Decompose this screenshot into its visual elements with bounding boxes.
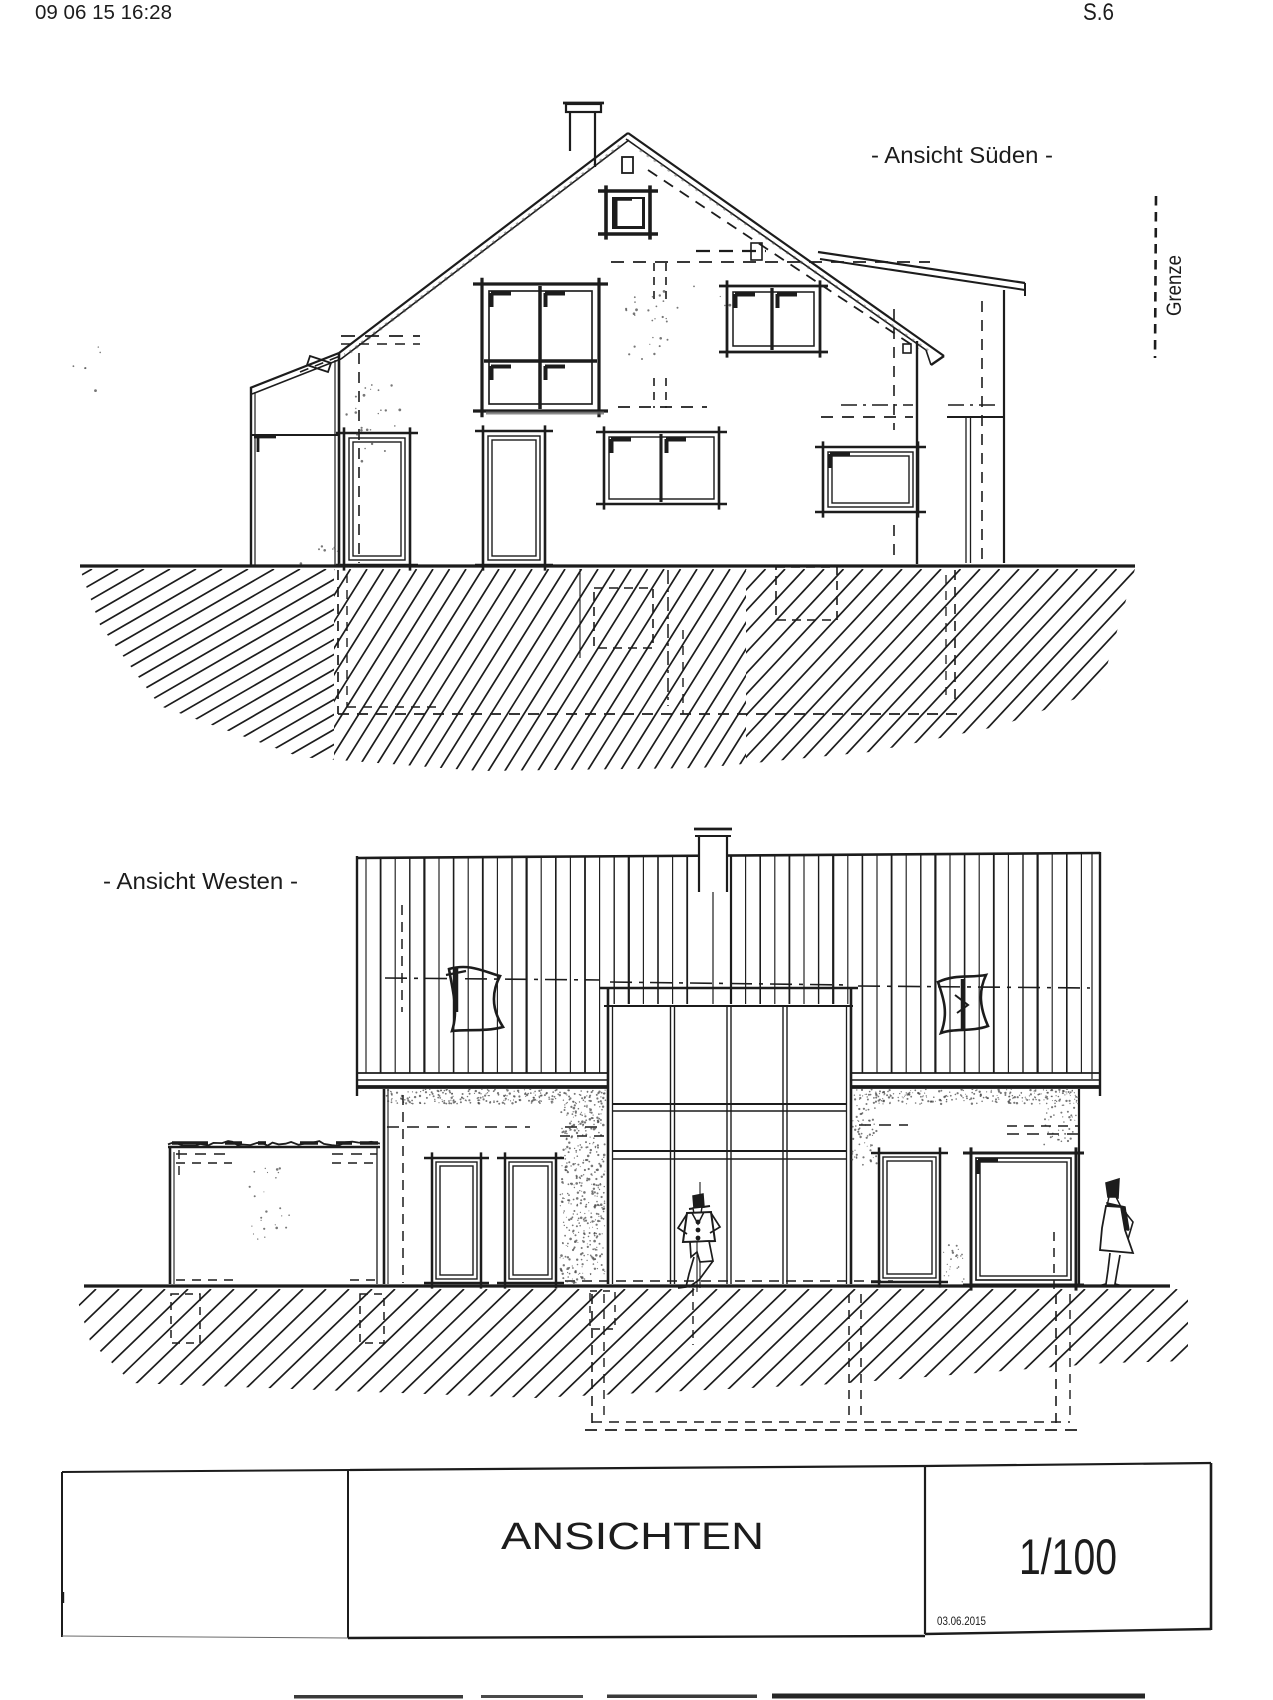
svg-text:S.6: S.6: [1083, 0, 1114, 26]
svg-text:Grenze: Grenze: [1163, 255, 1186, 316]
svg-text:03.06.2015: 03.06.2015: [937, 1614, 986, 1628]
svg-text:09 06 15 16:28: 09 06 15 16:28: [35, 1, 172, 24]
svg-text:ANSICHTEN: ANSICHTEN: [501, 1516, 764, 1558]
svg-text:- Ansicht Westen -: - Ansicht Westen -: [103, 868, 298, 894]
svg-text:1/100: 1/100: [1019, 1529, 1117, 1585]
svg-text:- Ansicht Süden -: - Ansicht Süden -: [871, 142, 1053, 168]
